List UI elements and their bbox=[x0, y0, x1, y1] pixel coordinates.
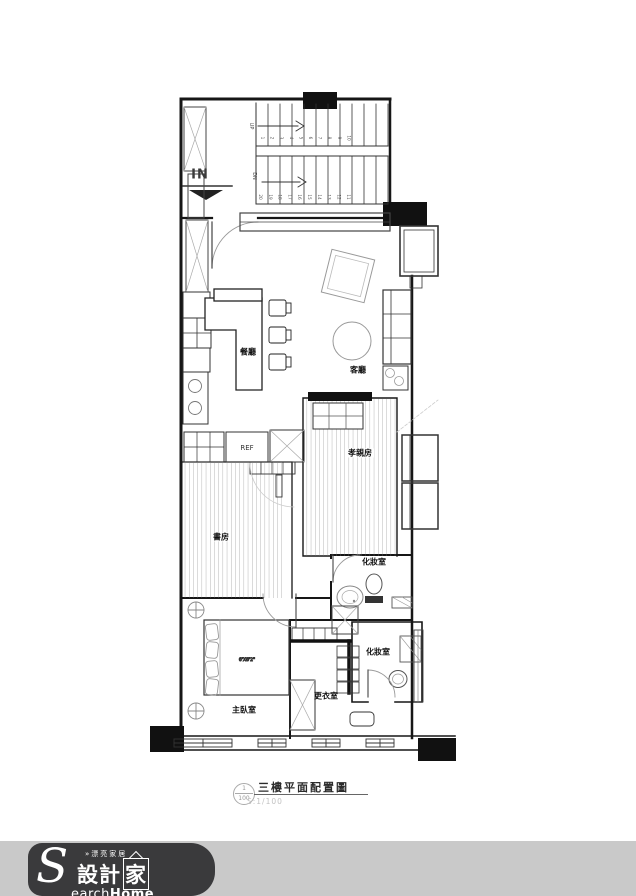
stair-number: 7 bbox=[318, 137, 323, 140]
room-label-living: 客廳 bbox=[350, 365, 366, 376]
entry-marker bbox=[183, 186, 232, 200]
room-label-master-bedroom: 主臥室 bbox=[232, 705, 256, 716]
logo-brand-last: 家 bbox=[125, 862, 147, 887]
drawing-reference-number: 1 bbox=[242, 785, 246, 792]
entry-arrow-icon bbox=[189, 190, 223, 200]
logo-earch: earch bbox=[71, 887, 110, 896]
page: 12345678910 20191817161514131211 UP DN bbox=[0, 0, 636, 896]
stair-number: 8 bbox=[327, 137, 332, 140]
stair-number: 17 bbox=[287, 194, 292, 200]
pillows bbox=[205, 623, 219, 695]
stair-number: 10 bbox=[346, 135, 351, 141]
toilet bbox=[366, 574, 382, 594]
entry-area bbox=[184, 107, 390, 292]
stair-up-label: UP bbox=[248, 123, 254, 130]
stair-number: 3 bbox=[279, 137, 284, 140]
staircase bbox=[256, 103, 388, 204]
logo-brand-name: 設計家 bbox=[77, 858, 149, 890]
stair-down-label: DN bbox=[251, 172, 257, 180]
stair-treads bbox=[256, 104, 388, 204]
bathroom-lower bbox=[368, 630, 423, 702]
stair-number: 13 bbox=[327, 194, 332, 200]
bedside-lamp bbox=[188, 602, 204, 719]
stair-number: 16 bbox=[297, 194, 302, 200]
tatami-room bbox=[303, 392, 438, 556]
floor-plan-drawing: 12345678910 20191817161514131211 UP DN bbox=[0, 0, 636, 896]
dining-island bbox=[205, 289, 291, 390]
title-underline bbox=[254, 794, 368, 795]
bed-size-label: 6'X6'2" bbox=[239, 657, 255, 663]
study-room: REF bbox=[184, 430, 304, 598]
stair-numbers-down: 20191817161514131211 bbox=[258, 194, 351, 200]
plan-title: 三樓平面配置圖 bbox=[258, 779, 349, 795]
house-icon: 家 bbox=[123, 858, 149, 890]
stair-number: 20 bbox=[258, 194, 263, 200]
stair-number: 9 bbox=[337, 137, 342, 140]
master-bedroom: 6'X6'2" bbox=[188, 594, 296, 719]
logo-s-initial: S bbox=[36, 839, 68, 894]
stair-numbers-up: 12345678910 bbox=[260, 135, 351, 141]
room-label-tatami: 孝親房 bbox=[346, 449, 374, 458]
stair-number: 6 bbox=[308, 137, 313, 140]
searchhome-logo: S »漂亮家居 設計家 earchHome bbox=[28, 843, 215, 896]
bottom-windows bbox=[174, 739, 394, 747]
bathtub bbox=[337, 586, 363, 608]
stair-number: 14 bbox=[317, 194, 322, 200]
room-label-dining: 餐廳 bbox=[240, 347, 256, 358]
stair-number: 12 bbox=[336, 194, 341, 200]
room-label-study: 書房 bbox=[211, 533, 231, 542]
stair-number: 1 bbox=[260, 137, 265, 140]
stair-number: 19 bbox=[268, 194, 273, 200]
stool bbox=[350, 712, 374, 726]
stair-number: 5 bbox=[298, 137, 303, 140]
sofa bbox=[383, 290, 411, 390]
walk-in-closet bbox=[290, 628, 374, 730]
room-label-walk-in-closet: 更衣室 bbox=[314, 691, 338, 702]
stair-number: 2 bbox=[270, 137, 275, 140]
plan-scale: S:1/100 bbox=[247, 797, 283, 806]
window-bay bbox=[400, 226, 438, 288]
stair-number: 18 bbox=[278, 194, 283, 200]
logo-searchhome-text: earchHome bbox=[71, 887, 154, 896]
entry-in-label: IN bbox=[191, 168, 209, 183]
room-label-bath-lower: 化妝室 bbox=[366, 647, 390, 658]
logo-brand-first: 設計 bbox=[77, 862, 121, 887]
stair-number: 15 bbox=[307, 194, 312, 200]
square-table bbox=[321, 249, 374, 302]
room-label-bath-upper: 化妝室 bbox=[362, 557, 386, 568]
stair-number: 11 bbox=[346, 194, 351, 200]
right-window-boxes bbox=[402, 435, 438, 529]
round-table bbox=[333, 322, 371, 360]
logo-home: Home bbox=[110, 887, 154, 896]
ref-label: REF bbox=[240, 444, 253, 452]
toilet bbox=[389, 671, 407, 688]
stair-number: 4 bbox=[289, 137, 294, 140]
dining-chairs bbox=[269, 300, 291, 370]
living-room bbox=[321, 226, 438, 390]
